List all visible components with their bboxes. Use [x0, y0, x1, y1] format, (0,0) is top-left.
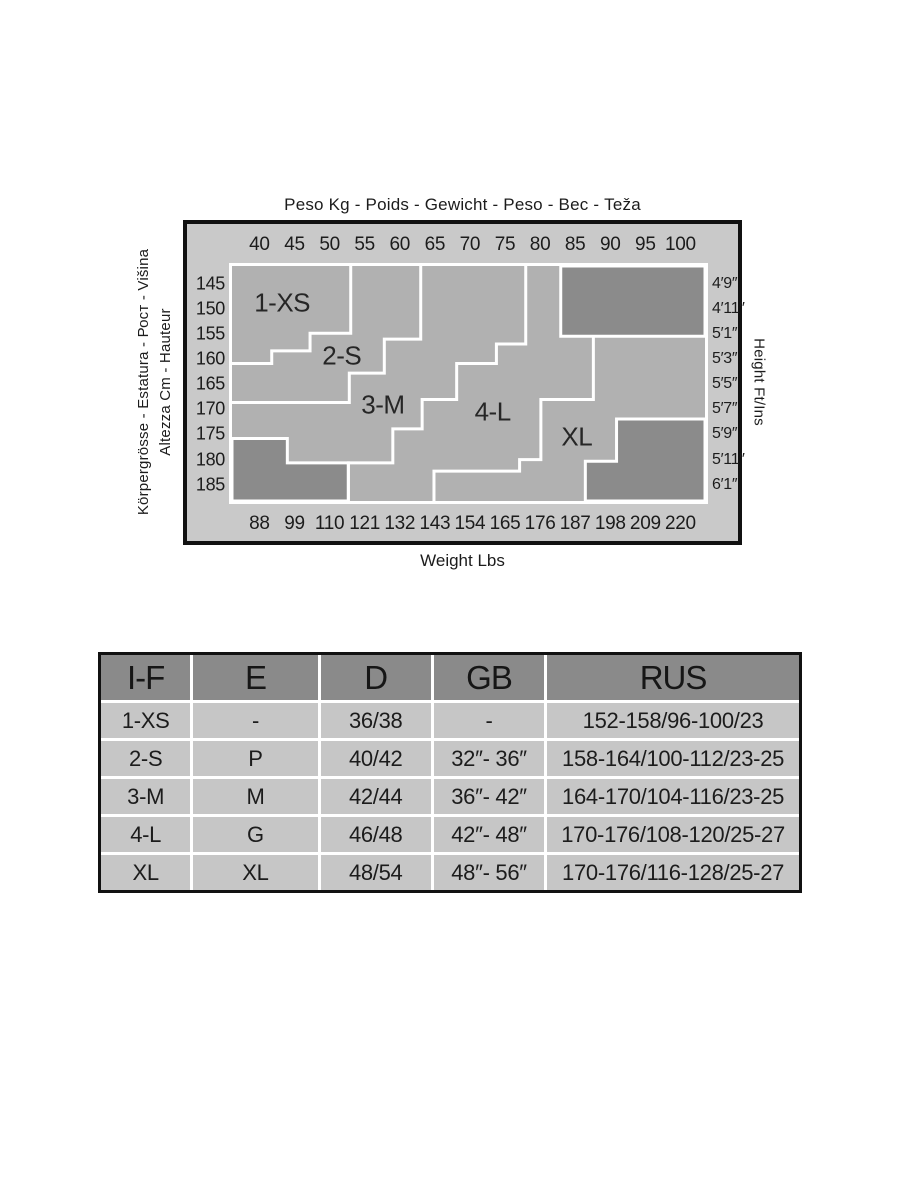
- lbs-tick-label: 187: [560, 513, 591, 535]
- table-header-cell: E: [193, 655, 317, 700]
- chart-title: Peso Kg - Poids - Gewicht - Peso - Вес -…: [183, 195, 742, 215]
- kg-tick-label: 80: [530, 234, 551, 256]
- table-cell: 170-176/108-120/25-27: [547, 817, 799, 852]
- kg-tick-label: 100: [665, 234, 696, 256]
- table-cell: 36/38: [321, 703, 431, 738]
- lbs-tick-label: 121: [349, 513, 380, 535]
- excluded-zone: [561, 266, 705, 336]
- table-cell: XL: [193, 855, 317, 890]
- cm-tick-label: 175: [196, 424, 225, 445]
- table-cell: 42/44: [321, 779, 431, 814]
- cm-tick-label: 145: [196, 273, 225, 294]
- kg-tick-label: 85: [565, 234, 586, 256]
- cm-tick-label: 170: [196, 399, 225, 420]
- table-header-cell: I-F: [101, 655, 190, 700]
- table-cell: 40/42: [321, 741, 431, 776]
- axis-right-title: Height Ft/Ins: [751, 338, 768, 426]
- kg-tick-label: 65: [425, 234, 446, 256]
- lbs-tick-label: 88: [249, 513, 270, 535]
- table-header-cell: D: [321, 655, 431, 700]
- lbs-tick-label: 165: [490, 513, 521, 535]
- kg-tick-label: 95: [635, 234, 656, 256]
- cm-tick-label: 150: [196, 298, 225, 319]
- axis-bottom-title: Weight Lbs: [183, 551, 742, 571]
- kg-tick-label: 60: [389, 234, 410, 256]
- kg-tick-label: 90: [600, 234, 621, 256]
- table-cell: -: [434, 703, 544, 738]
- table-cell: P: [193, 741, 317, 776]
- size-guide-page: { "chart_data": { "type": "area", "title…: [0, 0, 900, 1200]
- lbs-tick-label: 99: [284, 513, 305, 535]
- ftin-tick-label: 5′3″: [712, 350, 737, 368]
- kg-tick-label: 55: [354, 234, 375, 256]
- table-cell: 42″- 48″: [434, 817, 544, 852]
- table-cell: 3-M: [101, 779, 190, 814]
- table-cell: M: [193, 779, 317, 814]
- table-header-cell: RUS: [547, 655, 799, 700]
- axis-left-title-outer: Körpergrösse - Estatura - Рост - Višina: [133, 249, 155, 515]
- table-cell: 48″- 56″: [434, 855, 544, 890]
- ftin-tick-label: 5′11″: [712, 451, 745, 469]
- lbs-tick-label: 220: [665, 513, 696, 535]
- table-header-cell: GB: [434, 655, 544, 700]
- cm-tick-label: 165: [196, 374, 225, 395]
- kg-tick-label: 75: [495, 234, 516, 256]
- table-cell: -: [193, 703, 317, 738]
- size-zone-label: 3-M: [361, 390, 404, 421]
- axis-left-title: Körpergrösse - Estatura - Рост - Višina …: [133, 249, 177, 515]
- ftin-tick-label: 6′1″: [712, 476, 737, 494]
- table-cell: XL: [101, 855, 190, 890]
- kg-tick-label: 45: [284, 234, 305, 256]
- lbs-tick-label: 176: [525, 513, 556, 535]
- table-cell: 46/48: [321, 817, 431, 852]
- lbs-tick-label: 132: [384, 513, 415, 535]
- size-zone-label: 4-L: [475, 397, 511, 428]
- lbs-tick-label: 209: [630, 513, 661, 535]
- table-cell: 32″- 36″: [434, 741, 544, 776]
- size-zone-label: 2-S: [322, 340, 361, 371]
- table-cell: 152-158/96-100/23: [547, 703, 799, 738]
- table-cell: 36″- 42″: [434, 779, 544, 814]
- lbs-tick-label: 154: [455, 513, 486, 535]
- lbs-tick-label: 143: [419, 513, 450, 535]
- cm-tick-label: 155: [196, 323, 225, 344]
- size-chart-plot: 4045505560657075808590951008899110121132…: [229, 263, 708, 504]
- table-cell: 1-XS: [101, 703, 190, 738]
- lbs-tick-label: 110: [315, 513, 344, 535]
- lbs-tick-label: 198: [595, 513, 626, 535]
- axis-left-title-inner: Altezza Cm - Hauteur: [155, 249, 177, 515]
- kg-tick-label: 50: [319, 234, 340, 256]
- size-conversion-table: I-FEDGBRUS1-XS-36/38-152-158/96-100/232-…: [98, 652, 802, 893]
- table-cell: 170-176/116-128/25-27: [547, 855, 799, 890]
- cm-tick-label: 180: [196, 449, 225, 470]
- table-cell: 48/54: [321, 855, 431, 890]
- ftin-tick-label: 5′7″: [712, 400, 737, 418]
- ftin-tick-label: 5′1″: [712, 325, 737, 343]
- ftin-tick-label: 5′5″: [712, 375, 737, 393]
- ftin-tick-label: 5′9″: [712, 425, 737, 443]
- ftin-tick-label: 4′11″: [712, 300, 745, 318]
- cm-tick-label: 185: [196, 474, 225, 495]
- kg-tick-label: 70: [460, 234, 481, 256]
- size-zone-label: 1-XS: [254, 288, 310, 319]
- table-cell: 2-S: [101, 741, 190, 776]
- size-chart-frame: 4045505560657075808590951008899110121132…: [183, 220, 742, 545]
- table-cell: 4-L: [101, 817, 190, 852]
- kg-tick-label: 40: [249, 234, 270, 256]
- table-cell: G: [193, 817, 317, 852]
- table-cell: 158-164/100-112/23-25: [547, 741, 799, 776]
- cm-tick-label: 160: [196, 349, 225, 370]
- table-cell: 164-170/104-116/23-25: [547, 779, 799, 814]
- size-zone-label: XL: [561, 421, 592, 452]
- ftin-tick-label: 4′9″: [712, 275, 737, 293]
